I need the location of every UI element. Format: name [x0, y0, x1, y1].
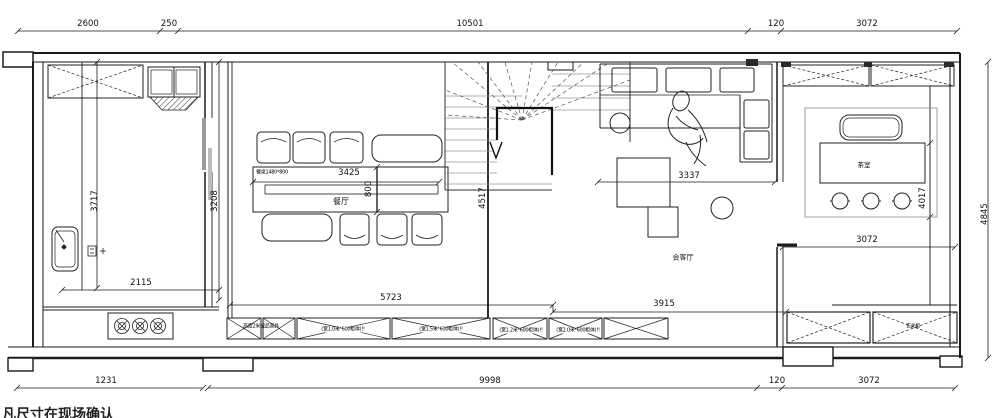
dining-bench-bottom — [262, 214, 332, 241]
dining-bench-top — [372, 135, 442, 162]
round-stool — [711, 197, 733, 219]
coffee-table-small — [648, 207, 678, 237]
floor-plan: 2600250105011203072371732082115342580045… — [0, 0, 1000, 418]
footer-note: 凡尺寸在现场确认 — [2, 404, 114, 418]
side-table — [610, 113, 630, 133]
staircase — [445, 62, 630, 190]
entry-cabinets — [787, 312, 957, 343]
sofa — [600, 64, 772, 162]
person-figure — [668, 89, 707, 166]
tea-stools — [830, 193, 912, 209]
kitchen — [43, 62, 219, 339]
balcony-cabinets — [227, 318, 668, 339]
tea-room — [781, 62, 954, 217]
dimension-lines — [14, 28, 991, 391]
tea-cushion — [840, 115, 902, 140]
tea-table — [820, 143, 925, 183]
dining-chairs-bottom — [340, 214, 442, 245]
dining-table — [253, 167, 448, 212]
tea-room-floor — [805, 108, 937, 217]
stair-winder-lines — [445, 62, 630, 120]
dining-chairs-top — [257, 132, 363, 163]
sink — [52, 227, 78, 271]
stove — [108, 313, 173, 339]
kitchen-crossed-cabinet — [48, 65, 143, 98]
living-area — [600, 64, 772, 237]
plan-linework — [0, 0, 1000, 418]
wardrobe-crossed-boxes — [781, 62, 954, 86]
dining-area — [253, 132, 448, 245]
range-hood-unit — [148, 67, 200, 110]
stair-direction-arrow — [490, 108, 552, 175]
coffee-table — [617, 158, 670, 207]
